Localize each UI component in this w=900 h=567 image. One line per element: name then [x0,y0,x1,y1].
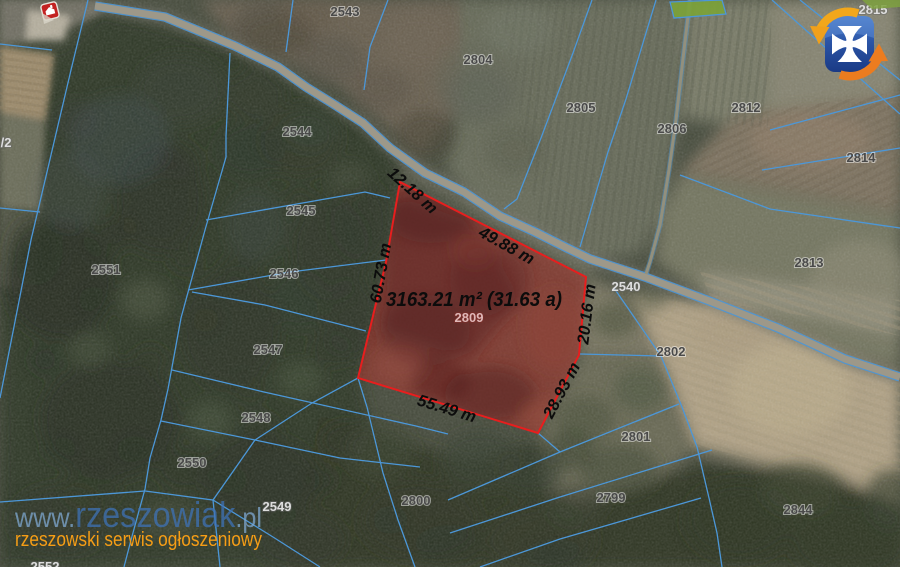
svg-text:2805: 2805 [567,100,596,115]
svg-text:3163.21 m² (31.63 a): 3163.21 m² (31.63 a) [386,288,562,311]
svg-text:2543: 2543 [331,4,360,19]
svg-text:2799: 2799 [597,490,626,505]
svg-text:2813: 2813 [795,255,824,270]
svg-text:2545: 2545 [287,203,316,218]
svg-text:2814: 2814 [847,150,877,165]
svg-text:2546: 2546 [270,266,299,281]
svg-text:2540: 2540 [612,279,641,294]
svg-text:2812: 2812 [732,100,761,115]
svg-text:2552: 2552 [31,559,60,567]
svg-text:2809: 2809 [455,310,484,325]
svg-text:2547: 2547 [254,342,283,357]
svg-text:2801: 2801 [622,429,651,444]
svg-text:2549: 2549 [263,499,292,514]
svg-text:2844: 2844 [784,502,814,517]
svg-text:rzeszowski serwis ogłoszeniowy: rzeszowski serwis ogłoszeniowy [15,529,262,551]
svg-text:2544: 2544 [283,124,313,139]
svg-text:2548: 2548 [242,410,271,425]
svg-text:2550: 2550 [178,455,207,470]
svg-text:/2: /2 [1,135,12,150]
svg-text:2800: 2800 [402,493,431,508]
svg-text:2806: 2806 [658,121,687,136]
svg-text:2802: 2802 [657,344,686,359]
svg-text:2551: 2551 [92,262,121,277]
svg-text:2804: 2804 [464,52,494,67]
